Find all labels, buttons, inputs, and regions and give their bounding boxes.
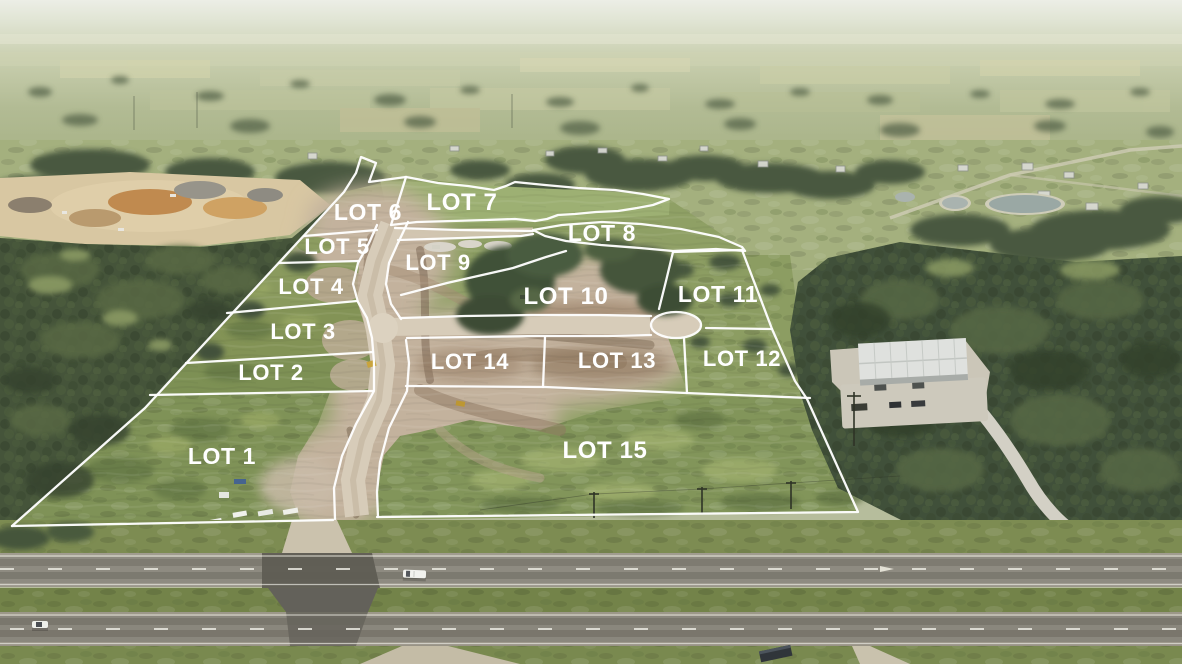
lot-label-lot-1: LOT 1 [188,443,256,469]
lot-label-lot-11: LOT 11 [678,281,758,307]
lot-label-lot-3: LOT 3 [270,319,335,344]
lot-label-lot-8: LOT 8 [568,220,636,246]
excavator [432,245,440,249]
lot11-lot12-divider [706,328,772,329]
lot-label-lot-7: LOT 7 [426,189,497,216]
lot-label-lot-13: LOT 13 [578,348,656,373]
lot8-access-corridor [400,232,533,234]
lot-label-lot-12: LOT 12 [703,346,781,371]
lot-label-lot-10: LOT 10 [524,283,609,310]
lot-label-lot-2: LOT 2 [238,360,303,385]
aerial-scene: LOT 1LOT 2LOT 3LOT 4LOT 5LOT 6LOT 7LOT 8… [0,0,1182,664]
parked-trailer [911,400,925,407]
blue-truck [234,479,246,484]
lot-label-lot-9: LOT 9 [405,250,470,275]
upper-roadway [0,553,1182,587]
bay-door [874,384,886,391]
aerial-photo: LOT 1LOT 2LOT 3LOT 4LOT 5LOT 6LOT 7LOT 8… [0,0,1182,664]
parked-camper [219,492,229,498]
crossover-median-section [268,588,378,612]
lot-label-lot-6: LOT 6 [334,199,402,225]
gravel-pile [174,181,226,199]
lot-label-lot-5: LOT 5 [304,234,369,259]
lot-label-lot-15: LOT 15 [563,437,648,464]
parked-trailer [889,402,901,409]
lot-label-lot-4: LOT 4 [278,274,344,299]
lot-label-lot-14: LOT 14 [431,349,509,374]
sand-quarry [0,172,330,246]
bay-door [912,382,924,389]
highway [0,518,1182,664]
